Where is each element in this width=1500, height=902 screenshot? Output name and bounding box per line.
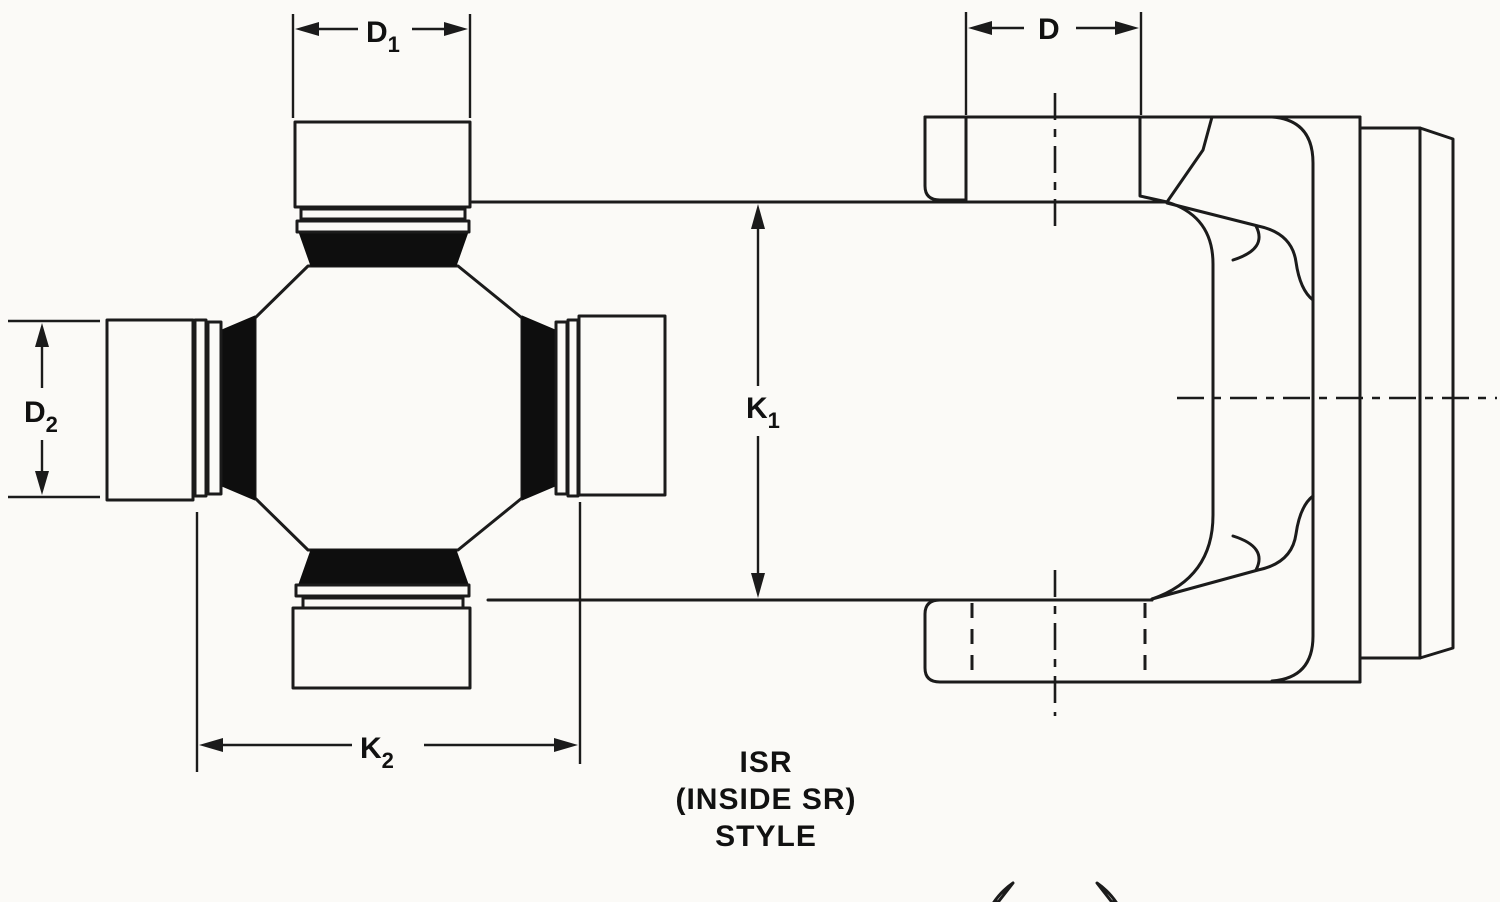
caption-line-1: ISR: [739, 746, 792, 779]
yoke-bottom-ear: [925, 600, 1360, 682]
yoke-section: [925, 93, 1497, 716]
k1-arrowhead-down: [751, 573, 765, 598]
yoke-seat-lip-top-fold: [1233, 226, 1259, 260]
d1-arrowhead-right: [444, 22, 468, 36]
dimension-d: D: [966, 12, 1141, 115]
dimension-d2: D2: [8, 321, 100, 497]
d-arrowhead-left: [968, 21, 992, 35]
cap-rim-right-outer: [556, 322, 567, 494]
cap-rim-left-inner: [195, 320, 206, 496]
yoke-inner-ear-profile: [1152, 202, 1213, 599]
dimension-k1: K1: [746, 204, 780, 598]
cap-rim-right-inner: [568, 320, 578, 496]
caption-line-3: STYLE: [715, 820, 817, 853]
bore-lip-left-hatched: [925, 117, 966, 200]
yoke-seat-lip-top: [1167, 203, 1313, 300]
dim-label-d1: D1: [366, 16, 400, 57]
u-joint-cross: [107, 122, 665, 688]
yoke-seat-lip-bottom: [1152, 496, 1313, 599]
cap-rim-top-outer: [297, 221, 469, 232]
d-arrowhead-right: [1115, 21, 1139, 35]
seal-left: [222, 316, 255, 500]
bearing-cap-top: [295, 122, 470, 207]
bore-lip-right-hatched: [1140, 117, 1212, 202]
caption-isr-style: ISR (INSIDE SR) STYLE: [675, 746, 856, 853]
dim-label-d: D: [1038, 13, 1060, 46]
k1-arrowhead-up: [751, 204, 765, 229]
dimension-d1: D1: [293, 14, 470, 118]
diagram-svg: D1 D2 K1 K2 D ISR: [0, 0, 1500, 902]
cap-rim-top-inner: [301, 209, 465, 219]
seal-bottom: [299, 550, 468, 584]
dim-label-k1: K1: [746, 392, 780, 433]
dim-label-d2: D2: [24, 396, 58, 437]
technical-diagram: D1 D2 K1 K2 D ISR: [0, 0, 1500, 902]
caption-line-2: (INSIDE SR): [675, 783, 856, 816]
yoke-seat-lip-bottom-fold: [1233, 536, 1259, 570]
seal-right: [522, 316, 555, 500]
snap-ring: [958, 883, 1152, 902]
seal-top: [299, 232, 468, 266]
k2-arrowhead-right: [554, 738, 578, 752]
bearing-cap-bottom: [293, 608, 470, 688]
bearing-cap-right: [579, 316, 665, 495]
k2-arrowhead-left: [199, 738, 223, 752]
yoke-back-section: [1360, 128, 1453, 658]
d2-arrowhead-down: [35, 471, 49, 495]
cross-body: [255, 266, 522, 550]
cap-rim-bottom-outer: [296, 585, 469, 596]
d2-arrowhead-up: [35, 323, 49, 347]
dim-label-k2: K2: [360, 732, 394, 773]
bearing-cap-left: [107, 320, 193, 500]
d1-arrowhead-left: [295, 22, 319, 36]
cap-rim-left-outer: [208, 322, 221, 494]
